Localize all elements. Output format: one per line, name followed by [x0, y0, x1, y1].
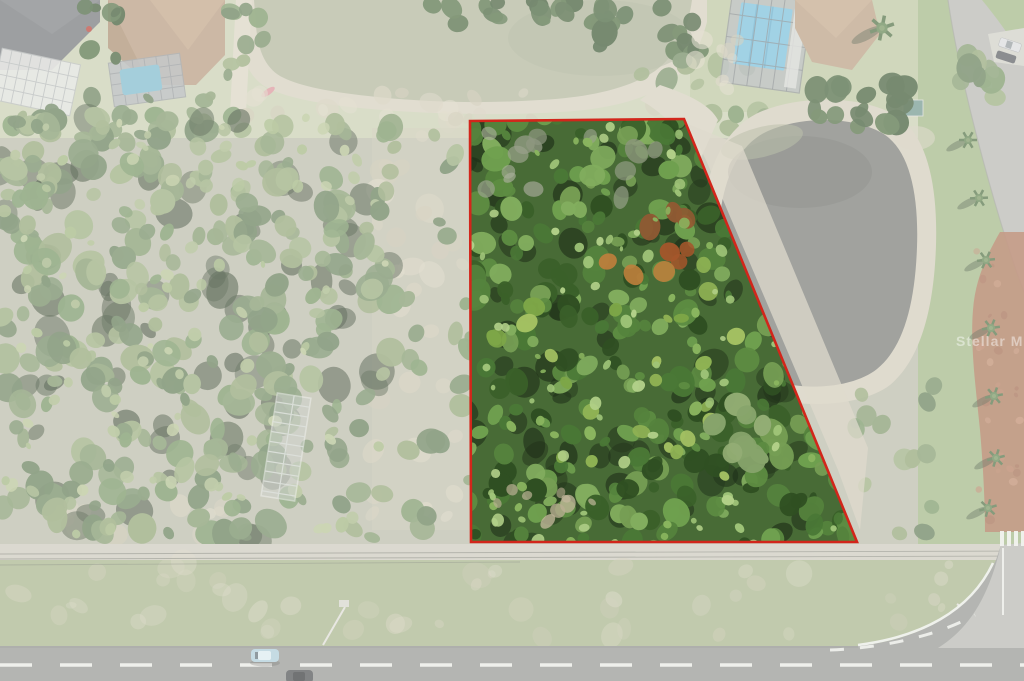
listing-aerial-photo: Stellar MLS	[0, 0, 1024, 681]
watermark: Stellar MLS	[956, 333, 1024, 349]
